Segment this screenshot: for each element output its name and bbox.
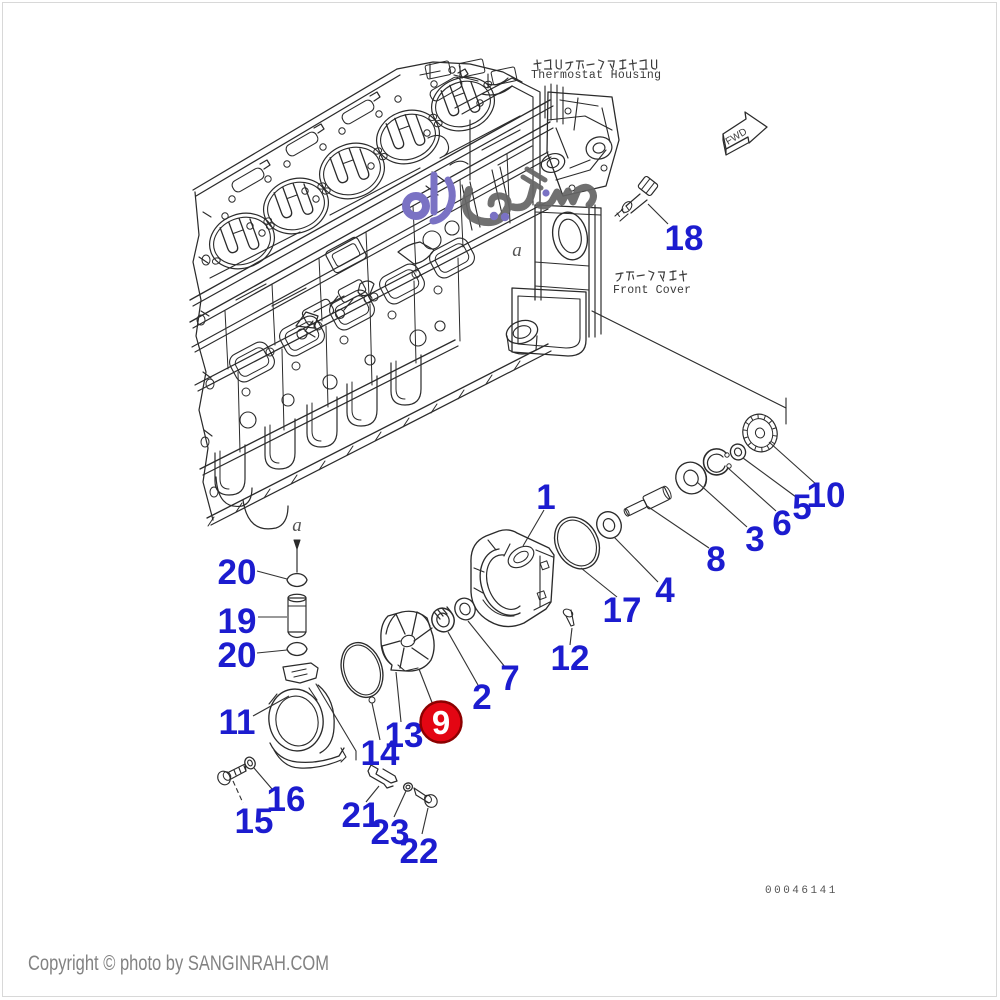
svg-text:00046141: 00046141 (765, 885, 838, 897)
svg-text:10: 10 (807, 476, 846, 515)
svg-text:20: 20 (218, 553, 257, 592)
svg-text:11: 11 (219, 703, 256, 742)
svg-text:Front Cover: Front Cover (613, 284, 691, 297)
svg-text:16: 16 (267, 780, 306, 819)
svg-text:4: 4 (655, 571, 675, 610)
svg-text:Thermostat Housing: Thermostat Housing (531, 69, 661, 82)
svg-text:6: 6 (772, 504, 791, 543)
svg-text:17: 17 (603, 591, 642, 630)
svg-text:23: 23 (371, 813, 410, 852)
svg-text:8: 8 (706, 540, 725, 579)
svg-text:12: 12 (551, 639, 590, 678)
svg-text:7: 7 (500, 659, 519, 698)
svg-text:20: 20 (218, 636, 257, 675)
svg-text:9: 9 (432, 704, 450, 741)
svg-text:a: a (292, 515, 302, 536)
svg-text:1: 1 (536, 478, 555, 517)
svg-text:a: a (512, 240, 522, 261)
svg-text:18: 18 (665, 219, 704, 258)
svg-text:14: 14 (361, 734, 400, 773)
svg-text:3: 3 (745, 520, 764, 559)
svg-text:2: 2 (472, 678, 491, 717)
svg-text:Copyright © photo by SANGINRAH: Copyright © photo by SANGINRAH.COM (28, 952, 329, 975)
